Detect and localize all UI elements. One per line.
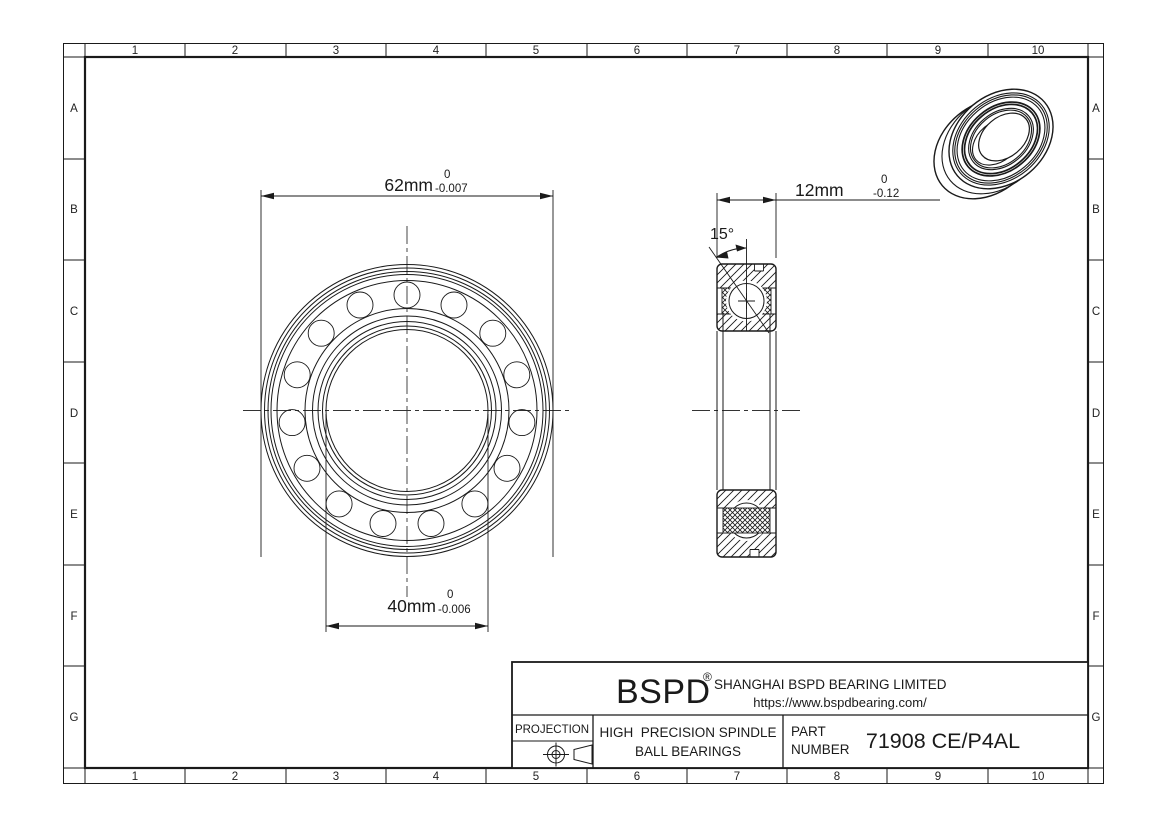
engineering-drawing: 1 2 3 4 5 6 7 8 9 10 1 2 3 4 5 6 7 8 9 1…	[0, 0, 1170, 827]
col-label: 2	[232, 45, 238, 57]
product-title-line1: HIGH PRECISION SPINDLE	[599, 725, 776, 740]
title-block: BSPD ® SHANGHAI BSPD BEARING LIMITED htt…	[512, 662, 1088, 768]
row-label: C	[1092, 306, 1100, 318]
front-view	[243, 226, 570, 597]
col-label: 9	[935, 771, 941, 783]
row-labels-right: A B C D E F G	[1092, 103, 1101, 724]
row-label: A	[1092, 103, 1100, 115]
row-label: C	[70, 306, 78, 318]
col-label: 6	[634, 45, 640, 57]
row-label: B	[70, 204, 78, 216]
bore-tol-lower: -0.006	[438, 604, 471, 616]
cage-window-bottom	[723, 508, 770, 533]
company-name: SHANGHAI BSPD BEARING LIMITED	[714, 677, 947, 692]
projection-label: PROJECTION	[515, 724, 589, 736]
col-label: 7	[734, 45, 740, 57]
row-label: E	[70, 509, 78, 521]
row-label: B	[1092, 204, 1100, 216]
col-label: 6	[634, 771, 640, 783]
bore-value: 40mm	[387, 596, 436, 616]
col-label: 10	[1032, 45, 1045, 57]
contact-angle-value: 15°	[710, 226, 734, 243]
col-label: 5	[533, 771, 539, 783]
section-view: 15°	[692, 226, 802, 559]
row-label: F	[1092, 611, 1099, 623]
width-tol-upper: 0	[881, 174, 887, 186]
row-label: G	[1092, 712, 1101, 724]
row-ticks	[64, 159, 1104, 666]
row-label: A	[70, 103, 78, 115]
part-number-label-line1: PART	[791, 724, 826, 739]
col-label: 5	[533, 45, 539, 57]
section-bottom-block	[717, 490, 776, 559]
od-tol-upper: 0	[444, 169, 450, 181]
registered-mark: ®	[703, 670, 712, 684]
bore-tol-upper: 0	[447, 589, 453, 601]
isometric-view	[914, 69, 1073, 220]
width-tol-lower: -0.12	[873, 188, 899, 200]
product-title-line2: BALL BEARINGS	[635, 744, 741, 759]
column-labels-bottom: 1 2 3 4 5 6 7 8 9 10	[132, 771, 1045, 783]
part-number-label-line2: NUMBER	[791, 742, 850, 757]
width-value: 12mm	[795, 180, 844, 200]
company-website: https://www.bspdbearing.com/	[753, 695, 927, 710]
col-label: 2	[232, 771, 238, 783]
drawing-page: 1 2 3 4 5 6 7 8 9 10 1 2 3 4 5 6 7 8 9 1…	[0, 0, 1170, 827]
row-label: E	[1092, 509, 1100, 521]
col-label: 8	[834, 45, 840, 57]
col-label: 4	[433, 771, 440, 783]
col-label: 3	[333, 771, 339, 783]
dimension-width: 12mm 0 -0.12	[717, 174, 940, 258]
col-label: 1	[132, 771, 138, 783]
brand-logo: BSPD	[616, 673, 711, 711]
col-label: 10	[1032, 771, 1045, 783]
part-number-value: 71908 CE/P4AL	[866, 729, 1020, 753]
row-label: D	[70, 408, 78, 420]
col-label: 8	[834, 771, 840, 783]
col-label: 7	[734, 771, 740, 783]
col-label: 1	[132, 45, 138, 57]
col-label: 3	[333, 45, 339, 57]
od-value: 62mm	[384, 175, 433, 195]
row-labels-left: A B C D E F G	[70, 103, 79, 724]
od-tol-lower: -0.007	[435, 183, 468, 195]
row-label: G	[70, 712, 79, 724]
col-label: 9	[935, 45, 941, 57]
column-labels-top: 1 2 3 4 5 6 7 8 9 10	[132, 45, 1045, 57]
col-label: 4	[433, 45, 440, 57]
row-label: F	[70, 611, 77, 623]
row-label: D	[1092, 408, 1100, 420]
